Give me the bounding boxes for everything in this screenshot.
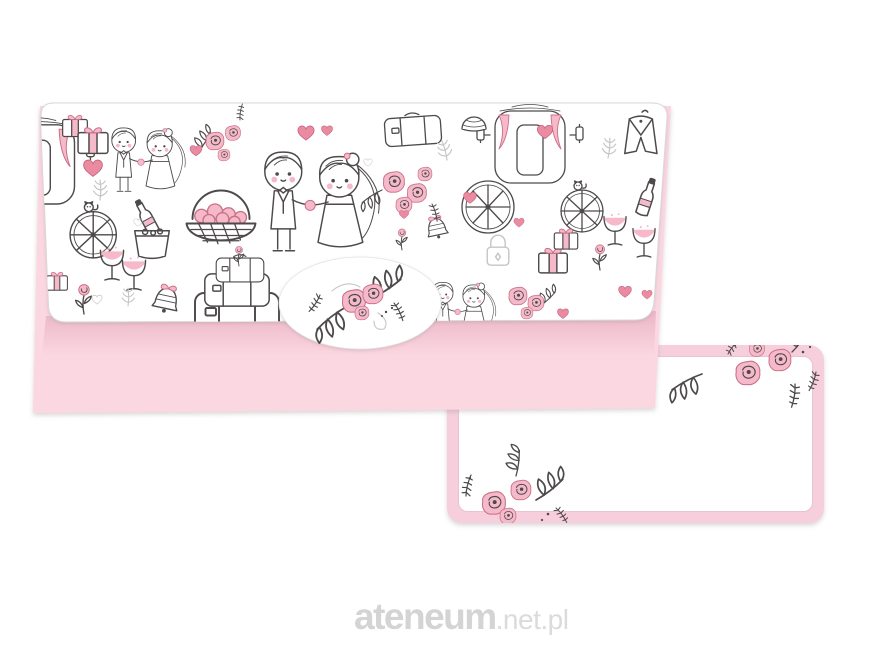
watermark-suffix: .net.pl — [496, 604, 569, 635]
product-photo-stage: ateneum.net.pl — [0, 0, 876, 657]
product-photo — [0, 0, 876, 657]
watermark-brand: ateneum — [354, 596, 496, 637]
envelope — [0, 103, 671, 413]
envelope-seal — [279, 257, 441, 349]
watermark: ateneum.net.pl — [354, 598, 568, 635]
